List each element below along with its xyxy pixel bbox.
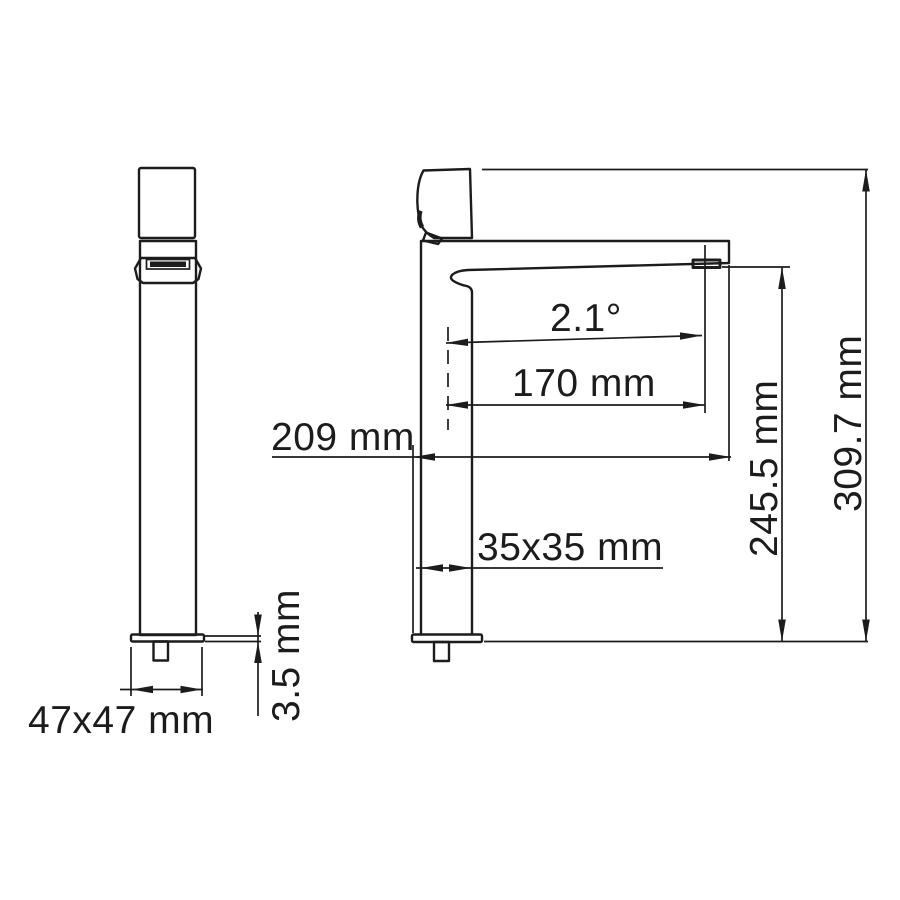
dim-outlet-height: 245.5 mm xyxy=(722,267,790,642)
arrowhead-bottom xyxy=(778,620,786,642)
overall-height-label: 309.7 mm xyxy=(827,335,870,512)
arrowhead-top xyxy=(778,267,786,289)
arrowhead-bottom xyxy=(862,620,870,642)
technical-drawing-canvas: 47x47 mm 3.5 mm 2.1° 170 mm xyxy=(0,0,900,900)
side-handle-lever-end xyxy=(417,210,424,229)
outlet-height-label: 245.5 mm xyxy=(743,380,786,557)
arrowhead-left xyxy=(421,564,443,572)
arrowhead-right xyxy=(449,564,471,572)
arrowhead-down xyxy=(254,615,262,637)
arrowhead-up xyxy=(254,642,262,664)
spout-angle-label: 2.1° xyxy=(550,297,622,340)
arrowhead-left xyxy=(413,453,435,461)
arrowhead-left xyxy=(446,401,468,409)
overall-reach-label: 209 mm xyxy=(271,416,415,459)
front-spout-slot xyxy=(150,262,186,268)
arrowhead-top xyxy=(862,170,870,192)
side-handle xyxy=(417,169,472,238)
arrowhead-left xyxy=(132,686,154,693)
faucet-side-view xyxy=(412,169,729,661)
side-shank xyxy=(434,642,449,661)
dim-plate-thickness: 3.5 mm xyxy=(205,589,308,722)
plate-thickness-label: 3.5 mm xyxy=(265,589,308,722)
drawing-page: 47x47 mm 3.5 mm 2.1° 170 mm xyxy=(0,0,900,900)
front-handle xyxy=(139,168,195,238)
arrowhead-right xyxy=(683,401,705,409)
base-footprint-label: 47x47 mm xyxy=(28,699,214,742)
front-body xyxy=(140,241,196,635)
dim-body-section: 35x35 mm xyxy=(416,526,663,572)
dim-spout-angle: 2.1° xyxy=(446,297,702,346)
front-shank xyxy=(154,642,169,661)
spout-reach-label: 170 mm xyxy=(512,362,656,405)
arrowhead-right xyxy=(181,686,203,693)
dim-base-footprint: 47x47 mm xyxy=(28,647,214,742)
arrowhead-right xyxy=(709,453,731,461)
faucet-front-view xyxy=(131,168,204,661)
dim-ext-lines xyxy=(205,636,261,642)
arrowhead-right xyxy=(680,332,702,339)
body-section-label: 35x35 mm xyxy=(477,526,663,569)
dim-overall-reach: 209 mm xyxy=(271,265,731,633)
